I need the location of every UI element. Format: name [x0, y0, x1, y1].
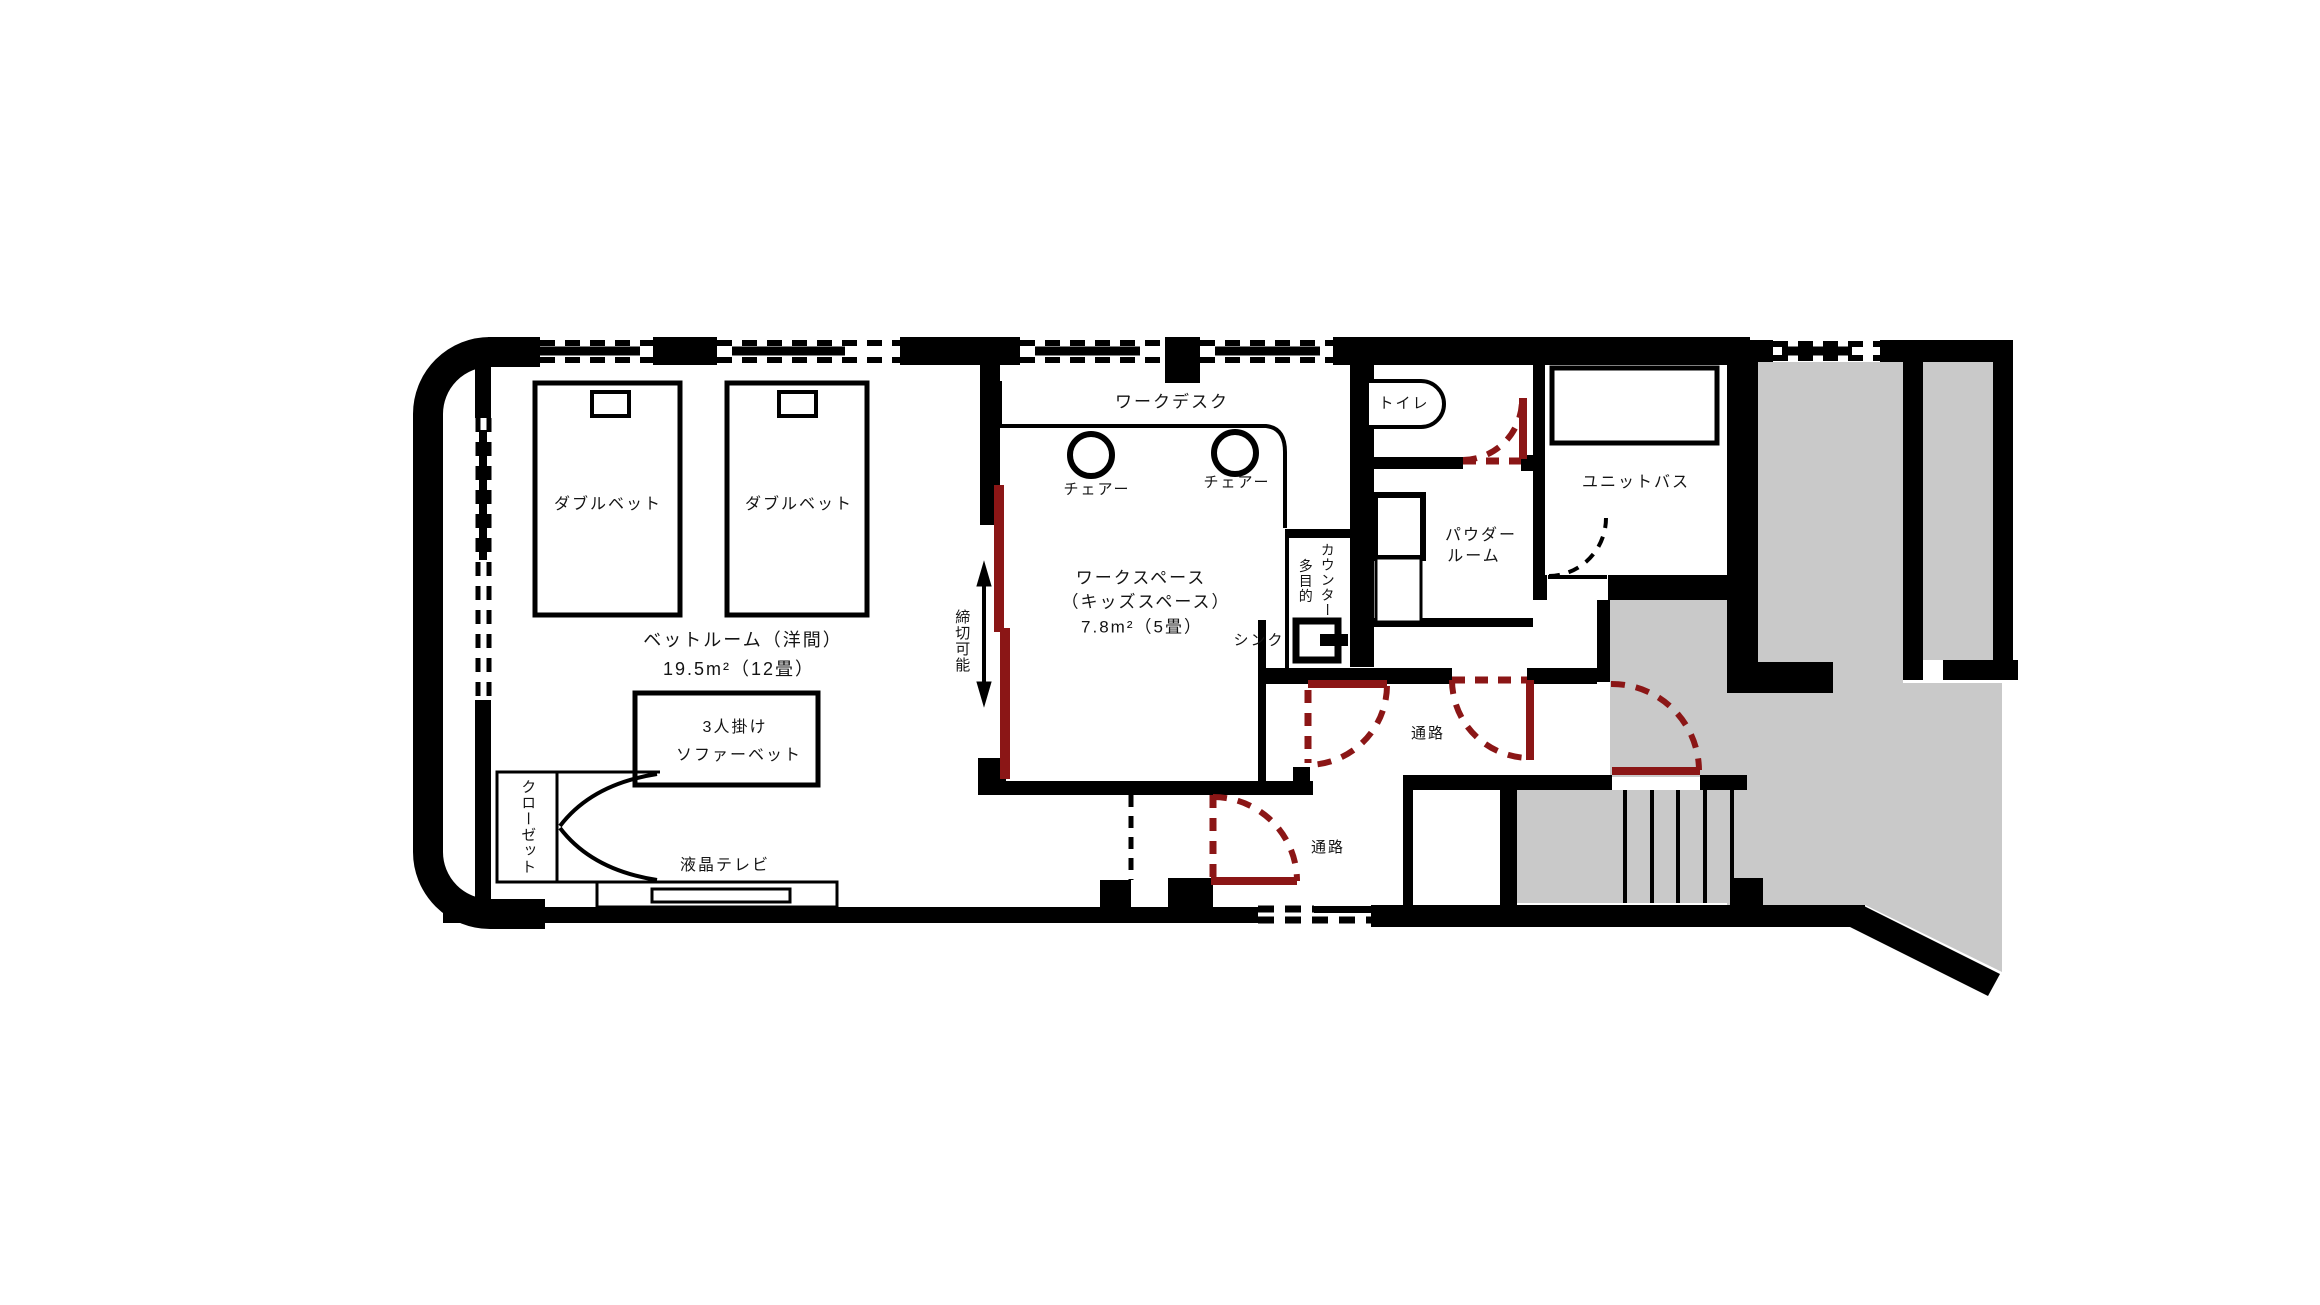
wall-bottom-right — [1371, 905, 1865, 927]
wall-block-entry-1 — [1100, 880, 1131, 907]
corridor-door-west-arc — [1308, 686, 1387, 765]
wall-nook-top — [1285, 529, 1350, 538]
common-room-left — [1758, 362, 1903, 662]
chair-left-icon — [1070, 434, 1112, 476]
wall-outer-east — [1993, 340, 2013, 680]
toilet-door-arc — [1463, 400, 1522, 460]
wall-corridor-bottom-2 — [1700, 775, 1747, 790]
wall-stub-corridor-door — [1293, 767, 1310, 782]
workspace-alt-label: （キッズスペース） — [1062, 594, 1231, 613]
common-corridor — [1727, 683, 2002, 905]
wall-top-3 — [900, 337, 1020, 365]
toilet-label: トイレ — [1378, 396, 1429, 413]
tv-label: 液晶テレビ — [680, 857, 770, 875]
entrance-solid — [1314, 906, 1371, 913]
wall-left-inner-top — [475, 363, 491, 418]
wall-left-outer — [413, 440, 443, 820]
wall-shaft-right — [1500, 780, 1517, 907]
sofa-bed-label-2: ソファーベット — [676, 747, 802, 765]
chair-right-icon — [1214, 432, 1256, 474]
bathtub — [1552, 368, 1717, 443]
workspace-area-label: 7.8m²（5畳） — [1081, 619, 1203, 638]
multi-counter-label-2: カウンター — [1319, 543, 1334, 618]
sink-label: シンク — [1233, 633, 1284, 650]
wall-bath-bottom-1 — [1533, 575, 1547, 600]
common-room-right — [1923, 362, 1993, 660]
wall-stair-stub — [1730, 878, 1763, 907]
bath-door-arc — [1549, 518, 1606, 576]
sofa-bed — [635, 693, 818, 785]
wall-bottom-main — [443, 907, 1258, 923]
closet-label: クローゼット — [519, 779, 536, 875]
wall-block-entry-2 — [1168, 878, 1213, 908]
double-bed-left-label: ダブルベット — [554, 496, 662, 514]
sofa-bed-label-1: 3人掛け — [703, 719, 768, 737]
powder-room-label-1: パウダー — [1445, 527, 1517, 545]
partition-arrow-head-up — [977, 562, 991, 586]
corridor-upper-label: 通路 — [1411, 726, 1445, 743]
bedroom-name-label: ベットルーム（洋間） — [643, 631, 842, 651]
unit-bath-label: ユニットバス — [1582, 474, 1690, 492]
wall-bath-west — [1533, 355, 1545, 600]
wall-top-pillar — [1165, 337, 1200, 383]
wall-landing-west — [1597, 600, 1610, 682]
tv-screen — [652, 889, 790, 902]
partition-arrow — [977, 562, 991, 706]
wall-corridor-top-east — [1527, 668, 1597, 684]
wall-nook-left-line — [1285, 538, 1289, 668]
partitionable-label: 締切可能 — [953, 609, 970, 673]
wall-shaft-left — [1403, 790, 1413, 907]
wall-unit-east — [1727, 360, 1758, 683]
stair-landing — [1610, 600, 1727, 777]
partition-arrow-head-down — [977, 682, 991, 706]
pillow-left — [592, 392, 629, 416]
lower-corridor-door-arc — [1213, 797, 1297, 881]
corridor-lower-label: 通路 — [1311, 840, 1345, 857]
floor-plan-stage: ダブルベット ダブルベット ベットルーム（洋間） 19.5m²（12畳） 3人掛… — [0, 0, 2320, 1305]
wall-common-divider — [1903, 362, 1923, 680]
chair-left-label: チェアー — [1063, 482, 1130, 499]
double-bed-right-label: ダブルベット — [745, 496, 853, 514]
wall-common-room-left-bottom — [1727, 662, 1833, 693]
vanity-lower — [1376, 558, 1421, 622]
pillow-right — [779, 392, 816, 416]
wall-top-2 — [653, 337, 717, 365]
wall-left-inner-bottom — [475, 700, 491, 910]
corridor-door-east-arc — [1452, 680, 1528, 758]
vanity-upper — [1375, 495, 1423, 558]
bedroom-area-label: 19.5m²（12畳） — [663, 660, 815, 680]
wall-toilet-bottom — [1373, 457, 1463, 469]
workspace-name-label: ワークスペース — [1076, 570, 1206, 589]
multi-counter-label-1: 多目的 — [1297, 559, 1312, 604]
powder-room-label-2: ルーム — [1447, 548, 1501, 566]
chair-right-label: チェアー — [1203, 475, 1270, 492]
work-desk-label: ワークデスク — [1115, 394, 1229, 413]
floor-plan-drawing — [0, 0, 2320, 1305]
closet-door-arc-lower — [560, 828, 657, 880]
entrance — [1258, 903, 1371, 927]
wall-top-right-1 — [1750, 340, 1773, 362]
sink-faucet — [1320, 634, 1348, 646]
staircase-floor — [1517, 790, 1747, 903]
wall-bath-bottom-2 — [1608, 575, 1727, 600]
